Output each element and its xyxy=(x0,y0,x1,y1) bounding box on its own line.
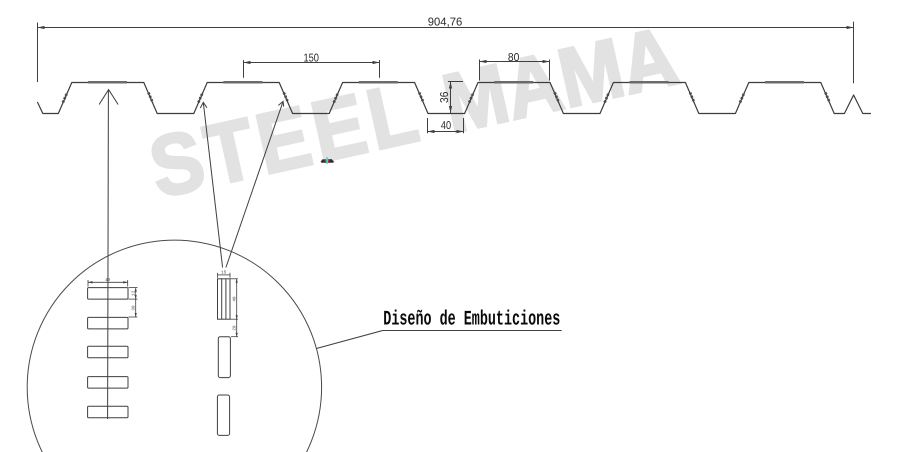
svg-text:STEEL: STEEL xyxy=(141,62,430,216)
svg-text:12: 12 xyxy=(131,290,136,296)
svg-text:20: 20 xyxy=(232,325,237,331)
svg-text:Diseño de Embuticiones: Diseño de Embuticiones xyxy=(383,309,560,332)
svg-text:80: 80 xyxy=(508,52,520,64)
svg-text:MAMA: MAMA xyxy=(435,9,686,151)
svg-text:40: 40 xyxy=(105,278,111,283)
svg-text:40: 40 xyxy=(232,296,237,302)
svg-text:40: 40 xyxy=(441,120,451,132)
svg-text:30: 30 xyxy=(131,305,136,311)
svg-text:15: 15 xyxy=(221,271,227,276)
svg-text:150: 150 xyxy=(303,53,319,65)
svg-text:904,76: 904,76 xyxy=(428,17,463,29)
svg-text:36: 36 xyxy=(439,92,451,103)
